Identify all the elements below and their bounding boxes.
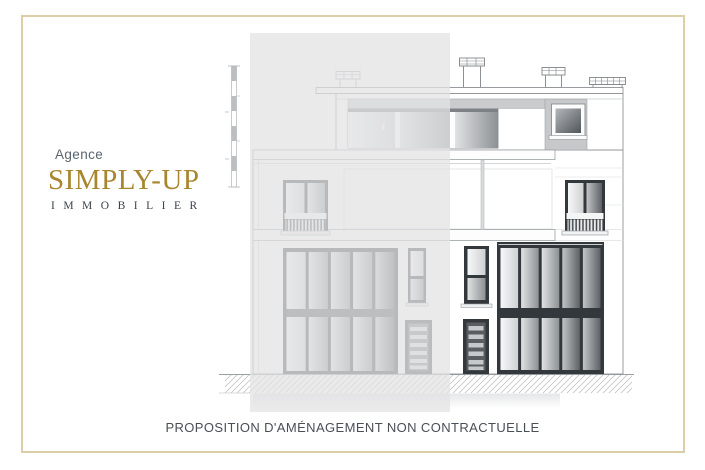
narrow-window-right (461, 246, 492, 308)
downpipe (481, 160, 484, 230)
chimney (542, 68, 565, 88)
elevation-drawing (0, 0, 705, 470)
existing-half-fade-overlay (250, 33, 450, 412)
balcony-railing (568, 220, 603, 232)
louvered-door-right (463, 319, 489, 374)
flyer-page: Agence SIMPLY-UP IMMOBILIER (0, 0, 705, 470)
building-elevation (219, 33, 634, 412)
height-scale-bar (225, 66, 240, 187)
dormer-window (545, 99, 587, 150)
french-balcony-window-right (562, 180, 608, 235)
storefront-glazing-right (497, 242, 604, 374)
chimney (460, 58, 485, 88)
disclaimer-caption: PROPOSITION D'AMÉNAGEMENT NON CONTRACTUE… (0, 420, 705, 435)
